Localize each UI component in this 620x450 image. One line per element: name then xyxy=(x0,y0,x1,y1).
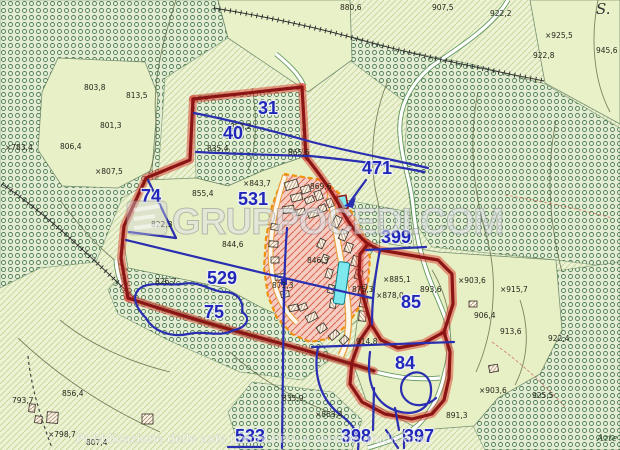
elev-label: 913,6 xyxy=(500,327,522,336)
elev-label: ×798,7 xyxy=(48,430,76,439)
elev-label: ×843,7 xyxy=(243,179,271,188)
elev-label: 793,7 xyxy=(12,396,34,405)
elev-label: 891,3 xyxy=(446,411,468,420)
elev-label: ×915,7 xyxy=(500,285,528,294)
place-label-s: S. xyxy=(596,0,611,18)
elev-label: ×863,4 xyxy=(315,410,343,419)
parcel-label-529: 529 xyxy=(207,268,237,288)
elev-label: ×878,0 xyxy=(376,291,404,300)
watermark-bottom-text: Pubblicazione delle aste immobiliari e v… xyxy=(76,431,427,446)
elev-label: 801,3 xyxy=(100,121,122,130)
elev-label: ×903,6 xyxy=(458,276,486,285)
elev-label: 922,2 xyxy=(490,9,512,18)
parcel-label-471: 471 xyxy=(362,158,392,178)
elev-label: 922,4 xyxy=(548,334,570,343)
parcel-label-31: 31 xyxy=(258,98,278,118)
elev-label: ×885,1 xyxy=(383,275,411,284)
elev-label: 856,4 xyxy=(62,389,84,398)
elev-label: 835,9 xyxy=(282,394,304,403)
cadastral-map-screenshot: ×783,4803,8813,5801,3806,4×807,5880,6907… xyxy=(0,0,620,450)
elev-label: 893,6 xyxy=(420,285,442,294)
watermark: GRUPPOCEDI.COM xyxy=(127,201,503,242)
elev-label: ×783,4 xyxy=(5,143,33,152)
cadastral-map: ×783,4803,8813,5801,3806,4×807,5880,6907… xyxy=(0,0,620,450)
elev-label: 803,8 xyxy=(84,83,106,92)
elev-label: 873,3 xyxy=(272,281,294,290)
elev-label: 925,5 xyxy=(532,391,554,400)
elev-label: 945,6 xyxy=(596,46,618,55)
elev-label: 914,8 xyxy=(356,337,378,346)
elev-label: 826,7 xyxy=(155,277,177,286)
elev-label: 855,4 xyxy=(192,189,214,198)
elev-label: 875,3 xyxy=(352,285,374,294)
elev-label: 869,6 xyxy=(310,182,332,191)
elev-label: ×807,5 xyxy=(95,167,123,176)
parcel-label-84: 84 xyxy=(395,353,415,373)
elev-label: 806,4 xyxy=(60,142,82,151)
elev-label: ×903,6 xyxy=(479,386,507,395)
elev-label: 907,5 xyxy=(432,3,454,12)
elev-label: 865,6 xyxy=(288,148,310,157)
elev-label: 880,6 xyxy=(340,3,362,12)
parcel-label-40: 40 xyxy=(223,123,243,143)
gruppocedi-logo-icon xyxy=(127,201,167,235)
parcel-label-75: 75 xyxy=(204,302,224,322)
elev-label: 813,5 xyxy=(126,91,148,100)
parcel-label-85: 85 xyxy=(401,292,421,312)
elev-label: 922,8 xyxy=(533,51,555,60)
elev-label: 835,4 xyxy=(207,144,229,153)
watermark-brand-text: GRUPPOCEDI.COM xyxy=(172,201,503,242)
elev-label: 906,4 xyxy=(474,311,496,320)
elev-label: ×925,5 xyxy=(545,31,573,40)
elev-label: 846,3 xyxy=(307,256,329,265)
place-label-azte: Azte xyxy=(596,434,617,444)
